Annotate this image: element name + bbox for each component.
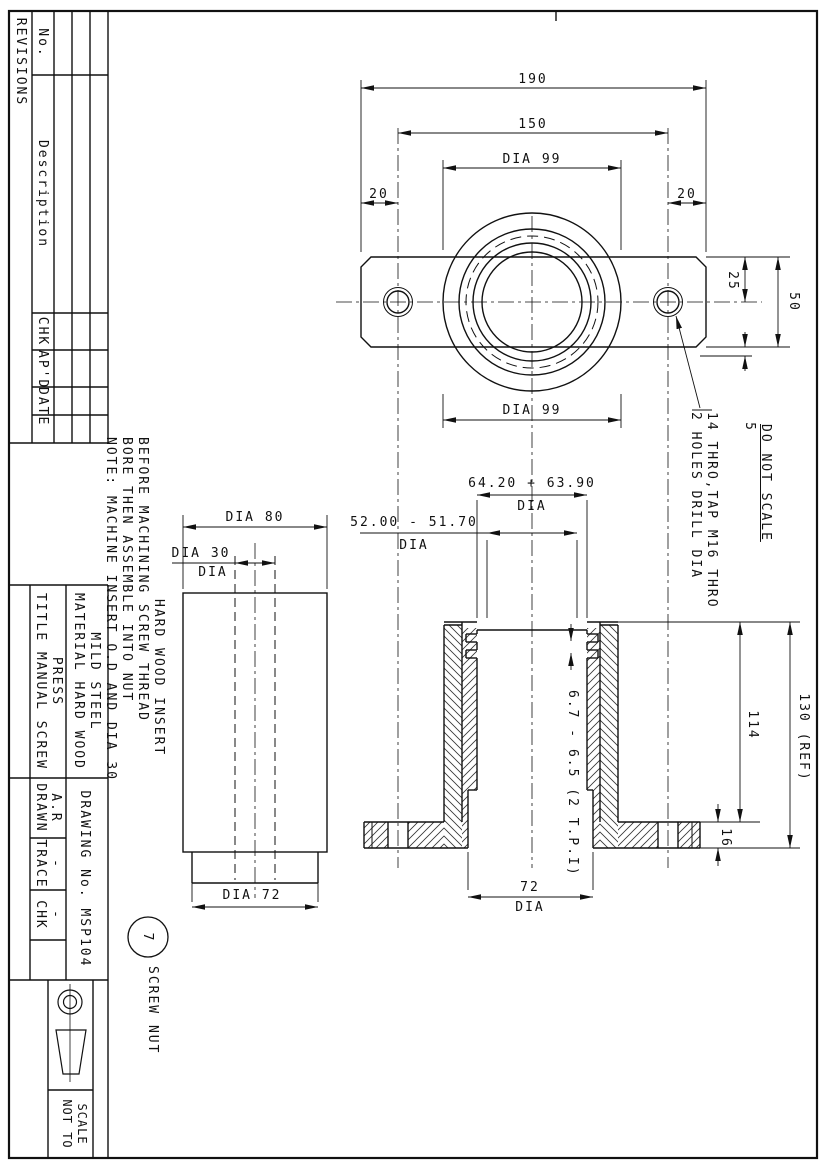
drawn-value: A.R — [48, 778, 63, 838]
trace-label: TRACE — [33, 838, 48, 890]
balloon-number: 7 — [140, 929, 155, 946]
dim-thread-pitch: 6.7 - 6.5 (2 T.P.I) — [565, 690, 580, 862]
trace-value: - — [48, 838, 63, 890]
dim-insert-dia30: DIA 30 — [172, 547, 231, 561]
dim-bore-72: 72 — [520, 881, 540, 895]
dim-step-5: 5 — [742, 416, 757, 438]
note-line-3: BEFORE MACHINING SCREW THREAD — [135, 437, 150, 802]
scale-note-line-2: SCALE — [74, 1090, 89, 1158]
dim-flange-16: 16 — [718, 826, 733, 850]
holes-note-line-1: 2 HOLES DRILL DIA — [688, 412, 703, 622]
title-line-1: TITLE MANUAL SCREW — [33, 585, 48, 778]
drawing-number: DRAWING No. MSP104 — [77, 778, 92, 980]
dim-thread-major-suffix: DIA — [517, 500, 546, 514]
dim-holes-150: 150 — [518, 118, 547, 132]
material-line-2: MILD STEEL — [87, 585, 102, 778]
material-line-1: MATERIAL HARD WOOD — [71, 585, 86, 778]
dim-thread-minor: 52.00 - 51.70 — [350, 516, 478, 530]
note-line-1: NOTE: MACHINE INSERT O.D AND DIA 30 — [103, 437, 118, 857]
holes-note-line-2: 14 THRO,TAP M16 THRO — [704, 412, 719, 662]
scale-note-line-1: NOT TO — [59, 1090, 74, 1158]
revisions-col-date: DATE — [35, 387, 50, 415]
dim-overall-130: 130 (REF) — [796, 670, 811, 805]
insert-dimensions — [172, 515, 327, 907]
chk-label: CHK — [33, 890, 48, 940]
dim-overall-190: 190 — [518, 73, 547, 87]
title-line-2: PRESS — [49, 585, 64, 778]
hard-wood-insert-label: HARD WOOD INSERT — [151, 599, 166, 785]
dim-insert-dia80: DIA 80 — [226, 511, 285, 525]
plan-dimensions — [361, 80, 790, 428]
do-not-scale-note: DO NOT SCALE — [758, 424, 773, 554]
dim-edge-20-right: 20 — [677, 188, 697, 202]
revisions-col-chk: CHK — [35, 313, 50, 350]
dim-thread-minor-suffix: DIA — [399, 539, 428, 553]
dim-thread-major: 64.20 + 63.90 — [468, 477, 596, 491]
dim-offset-25: 25 — [725, 264, 740, 298]
dim-boss-dia99-top: DIA 99 — [503, 153, 562, 167]
dim-bore-72-suffix: DIA — [515, 901, 544, 915]
chk-value: - — [48, 890, 63, 940]
projection-symbol — [56, 984, 86, 1082]
dim-insert-dia72: DIA 72 — [223, 889, 282, 903]
revisions-col-no: No. — [35, 11, 50, 75]
revisions-title: REVISIONS — [13, 14, 28, 110]
part-name-label: SCREW NUT — [145, 966, 160, 1081]
note-line-2: BORE THEN ASSEMBLE INTO NUT — [119, 437, 134, 767]
dim-width-50: 50 — [786, 286, 801, 318]
revisions-col-apd: AP'D — [35, 350, 50, 387]
dim-edge-20-left: 20 — [369, 188, 389, 202]
dim-boss-dia99-bottom: DIA 99 — [503, 404, 562, 418]
dim-height-114: 114 — [745, 708, 760, 742]
dim-insert-dia30-suffix: DIA — [198, 566, 227, 580]
centerlines — [255, 128, 762, 898]
drawn-label: DRAWN — [33, 778, 48, 838]
drawing-sheet: REVISIONS No. Description CHK AP'D DATE … — [0, 0, 826, 1169]
revisions-col-description: Description — [35, 75, 50, 313]
